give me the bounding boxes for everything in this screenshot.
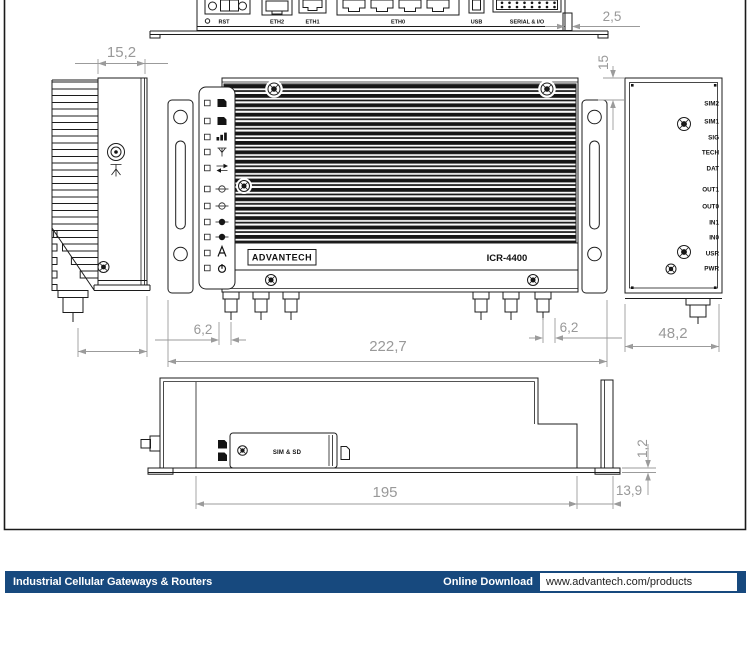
sim1-card-icon	[218, 117, 227, 125]
footer-download-area: Online Download www.advantech.com/produc…	[443, 571, 746, 593]
sim-sd-label: SIM & SD	[273, 450, 302, 456]
brand-text: ADVANTECH	[252, 253, 312, 263]
usb-port	[469, 0, 484, 13]
screw	[236, 178, 252, 194]
screw	[238, 446, 248, 456]
screw	[538, 80, 556, 98]
antenna-connector	[108, 144, 125, 161]
top-view: ADVANTECH ICR-4400	[168, 78, 607, 320]
dim-connector-offset: 2,5	[603, 9, 622, 24]
serial-io-terminal	[493, 0, 561, 12]
led-label-pwr: PWR	[704, 266, 719, 273]
dim-overall-width: 222,7	[369, 338, 407, 355]
mount-bracket-left	[168, 100, 193, 293]
sd-card-icon	[341, 447, 350, 460]
port-label-serial: SERIAL & I/O	[510, 20, 545, 26]
footer-url-box: www.advantech.com/products	[540, 573, 737, 591]
led-label-sig: SIG	[708, 135, 719, 142]
footer-url-text: www.advantech.com/products	[546, 576, 692, 588]
screw	[265, 80, 283, 98]
power-terminal	[205, 0, 250, 14]
sim1-slot-icon	[218, 440, 227, 449]
led-label-out1: OUT1	[702, 187, 719, 194]
led-label-out0: OUT0	[702, 204, 719, 211]
port-label-rst: RST	[219, 20, 231, 26]
led-label-tech: TECH	[702, 150, 720, 157]
screw	[666, 264, 676, 274]
dim-antenna-top-offset: 15,2	[107, 44, 136, 61]
port-label-eth2: ETH2	[270, 20, 284, 26]
reset-button	[205, 19, 209, 23]
mount-bracket-right	[582, 100, 607, 293]
dim-base-length: 195	[372, 484, 397, 501]
left-side-view	[52, 78, 150, 322]
screw	[266, 275, 277, 286]
led-label-usr: USR	[706, 251, 720, 258]
eth2-sfp-port	[262, 0, 292, 15]
eth1-port	[299, 0, 326, 13]
mount-bracket-edge	[563, 13, 572, 31]
eth0-port-block	[337, 0, 459, 15]
dim-lid-step-height: 15	[596, 55, 611, 70]
led-label-sim1: SIM1	[704, 119, 719, 126]
footer-download-label: Online Download	[443, 576, 533, 588]
heatsink-ribs	[224, 84, 576, 243]
dim-right-view-depth: 48,2	[658, 325, 687, 342]
sma-stub	[141, 436, 160, 451]
bottom-view: SIM & SD	[141, 378, 620, 474]
model-text: ICR-4400	[487, 253, 528, 264]
screw	[678, 246, 691, 259]
dim-antenna-left-offset: 6,2	[194, 322, 213, 337]
datasheet-page: RST ETH2 ETH1 ETH0 USB	[0, 0, 750, 650]
footer-bar: Industrial Cellular Gateways & Routers O…	[5, 571, 746, 593]
right-side-view: SIM2 SIM1 SIG TECH DAT OUT1 OUT0 IN1 IN0…	[625, 78, 722, 324]
sim-sd-door: SIM & SD	[230, 433, 337, 468]
led-label-in0: IN0	[709, 235, 719, 242]
port-label-usb: USB	[471, 20, 483, 26]
dimension-drawing: RST ETH2 ETH1 ETH0 USB	[0, 0, 750, 562]
led-label-in1: IN1	[709, 220, 719, 227]
screw	[528, 275, 539, 286]
led-label-dat: DAT	[707, 166, 720, 173]
mount-bracket-edge	[601, 380, 613, 468]
antenna-icon	[111, 165, 122, 177]
dim-antenna-right-offset: 6,2	[560, 320, 579, 335]
led-label-sim2: SIM2	[704, 101, 719, 108]
dim-bracket-offset: 13,9	[616, 483, 642, 498]
sim2-slot-icon	[218, 453, 227, 462]
sma-connectors	[223, 292, 551, 320]
sma-connector	[58, 291, 88, 323]
footer-category-label: Industrial Cellular Gateways & Routers	[5, 576, 212, 588]
screw	[678, 118, 691, 131]
port-label-eth0: ETH0	[391, 20, 405, 26]
mount-foot-left	[148, 468, 173, 474]
front-view-partial: RST ETH2 ETH1 ETH0 USB	[150, 0, 608, 38]
sim2-card-icon	[218, 99, 227, 107]
port-label-eth1: ETH1	[305, 20, 319, 26]
screw	[98, 262, 109, 273]
sma-connector	[686, 299, 710, 325]
mount-foot-right	[595, 468, 620, 474]
heatsink-fins	[52, 82, 98, 291]
